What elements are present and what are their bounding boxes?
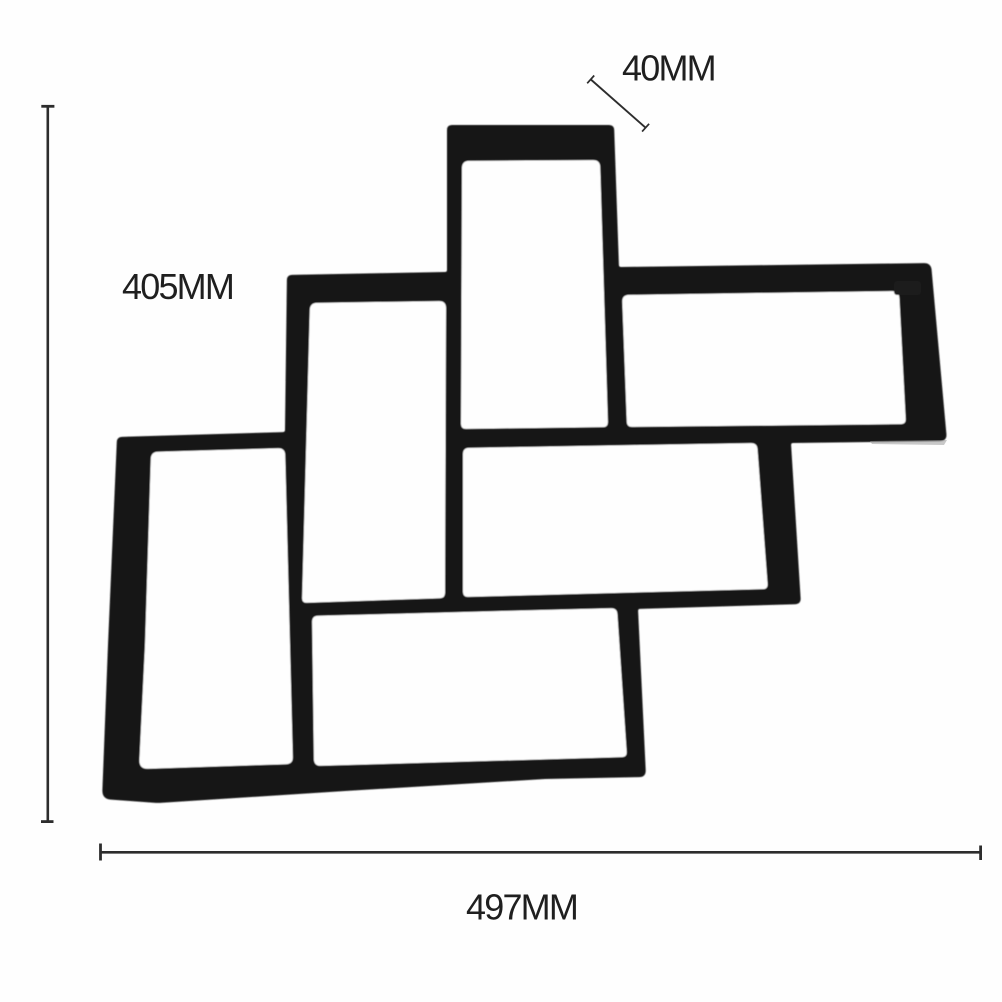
svg-text:40MM: 40MM	[622, 48, 715, 89]
svg-text:405MM: 405MM	[122, 266, 233, 307]
svg-text:497MM: 497MM	[466, 887, 577, 928]
